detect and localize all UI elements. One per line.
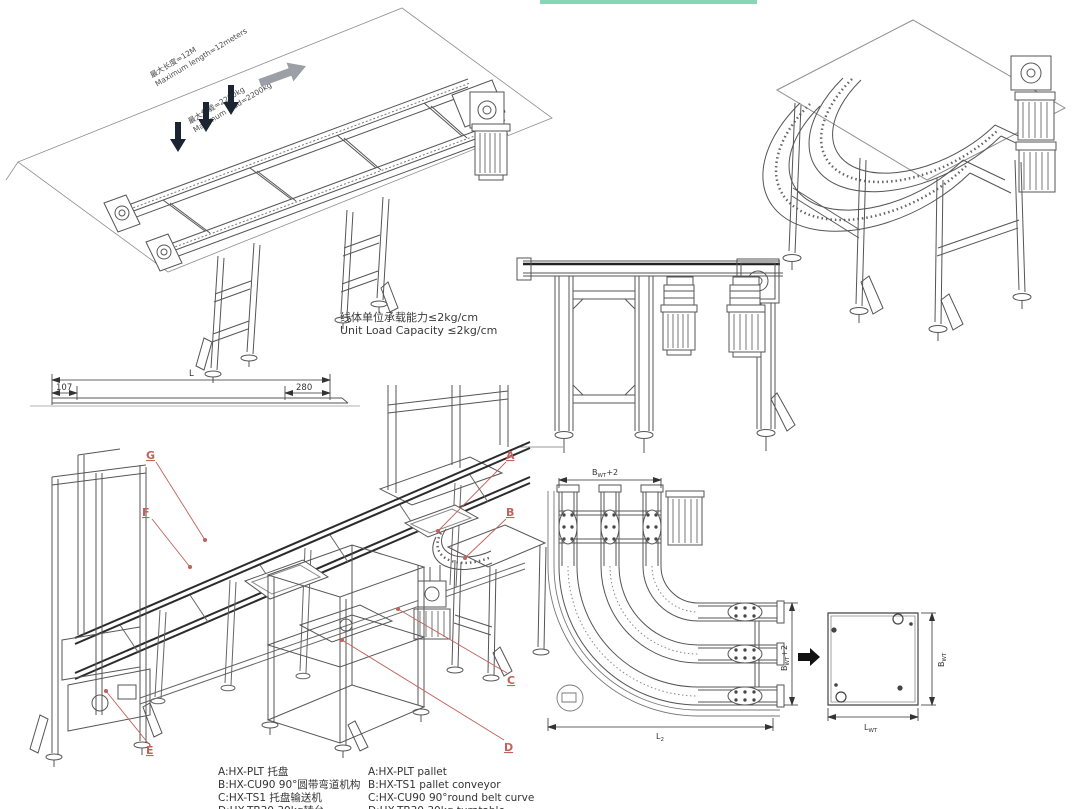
catalog-page: 最大长度=12M Maximum length=12meters 最大负载=22… — [0, 0, 1080, 809]
load-plane — [6, 8, 552, 272]
side-table — [447, 525, 549, 681]
load-direction-arrows — [170, 85, 239, 152]
rail-cross-ties — [120, 475, 525, 704]
horizontal-lane-modules — [698, 601, 784, 707]
capacity-note-cn: 线体单位承载能力≤2kg/cm — [340, 311, 497, 324]
unit-load-capacity-note: 线体单位承载能力≤2kg/cm Unit Load Capacity ≤2kg/… — [340, 311, 497, 337]
dim-bottom-length: L2 — [656, 732, 664, 743]
legend-item: C:HX-CU90 90°round belt curve — [368, 792, 534, 805]
curve-conveyor-isometric-drawing — [765, 8, 1080, 333]
svg-text:Maximum length=12meters: Maximum length=12meters — [154, 26, 249, 88]
dim-top-width: BWT+2 — [592, 468, 618, 479]
curve-drive-motors — [1011, 56, 1056, 192]
legend-column-cn: A:HX-PLT 托盘 B:HX-CU90 90°圆带弯道机构 C:HX-TS1… — [218, 766, 360, 809]
side-dimension-drawing: L 107 280 — [30, 360, 360, 410]
capacity-note-en: Unit Load Capacity ≤2kg/cm — [340, 324, 497, 337]
curve-motor — [414, 565, 450, 639]
legend-item: D:HX-TB30 30kg turntable — [368, 805, 534, 809]
legend-item: B:HX-CU90 90°圆带弯道机构 — [218, 779, 360, 792]
conveyor-legs — [196, 197, 398, 383]
max-length-annotation: 最大长度=12M Maximum length=12meters — [148, 17, 249, 89]
callout-b: B — [506, 506, 514, 519]
legend-column-en: A:HX-PLT pallet B:HX-TS1 pallet conveyor… — [368, 766, 534, 809]
dim-overall-length: L — [189, 369, 194, 379]
legend-item: C:HX-TS1 托盘输送机 — [218, 792, 360, 805]
gantry-posts — [380, 385, 508, 505]
dim-pallet-length: LWT — [864, 723, 878, 734]
gear-motor-2 — [727, 277, 765, 357]
conveyor-rails — [104, 79, 508, 271]
legend-item: A:HX-PLT pallet — [368, 766, 534, 779]
callout-d: D — [504, 741, 513, 754]
legend-item: B:HX-TS1 pallet conveyor — [368, 779, 534, 792]
callout-e: E — [146, 744, 154, 757]
drive-motor — [452, 80, 510, 180]
down-arrow-icon — [170, 122, 186, 152]
conveyor-front-elevation-drawing — [515, 245, 805, 460]
plan-motor-top — [666, 491, 704, 545]
curve-plan-view-drawing: BWT+2 BWT+2 L2 LWT BWT — [540, 455, 960, 755]
pallet-plan — [828, 613, 918, 705]
callout-c: C — [507, 674, 515, 687]
round-belt-curve — [433, 529, 492, 570]
pallet-system-assembly-drawing: G F A B C D E — [0, 385, 550, 785]
curve-belts — [763, 78, 1033, 231]
callout-f: F — [142, 506, 150, 519]
callout-g: G — [146, 449, 155, 462]
beam-profile — [30, 396, 360, 406]
vertical-lane-modules — [557, 485, 704, 566]
gear-motor-1 — [661, 277, 697, 355]
transfer-arrow-icon — [798, 648, 820, 666]
dim-right-offset: 280 — [296, 383, 312, 393]
callout-a: A — [506, 449, 515, 462]
legend-item: D:HX-TB30 30kg转台 — [218, 805, 360, 809]
dim-left-offset: 107 — [56, 383, 72, 393]
legend-item: A:HX-PLT 托盘 — [218, 766, 360, 779]
top-accent-bar — [540, 0, 757, 4]
lane-arcs — [559, 566, 698, 705]
dim-pallet-width: BWT — [937, 652, 948, 667]
